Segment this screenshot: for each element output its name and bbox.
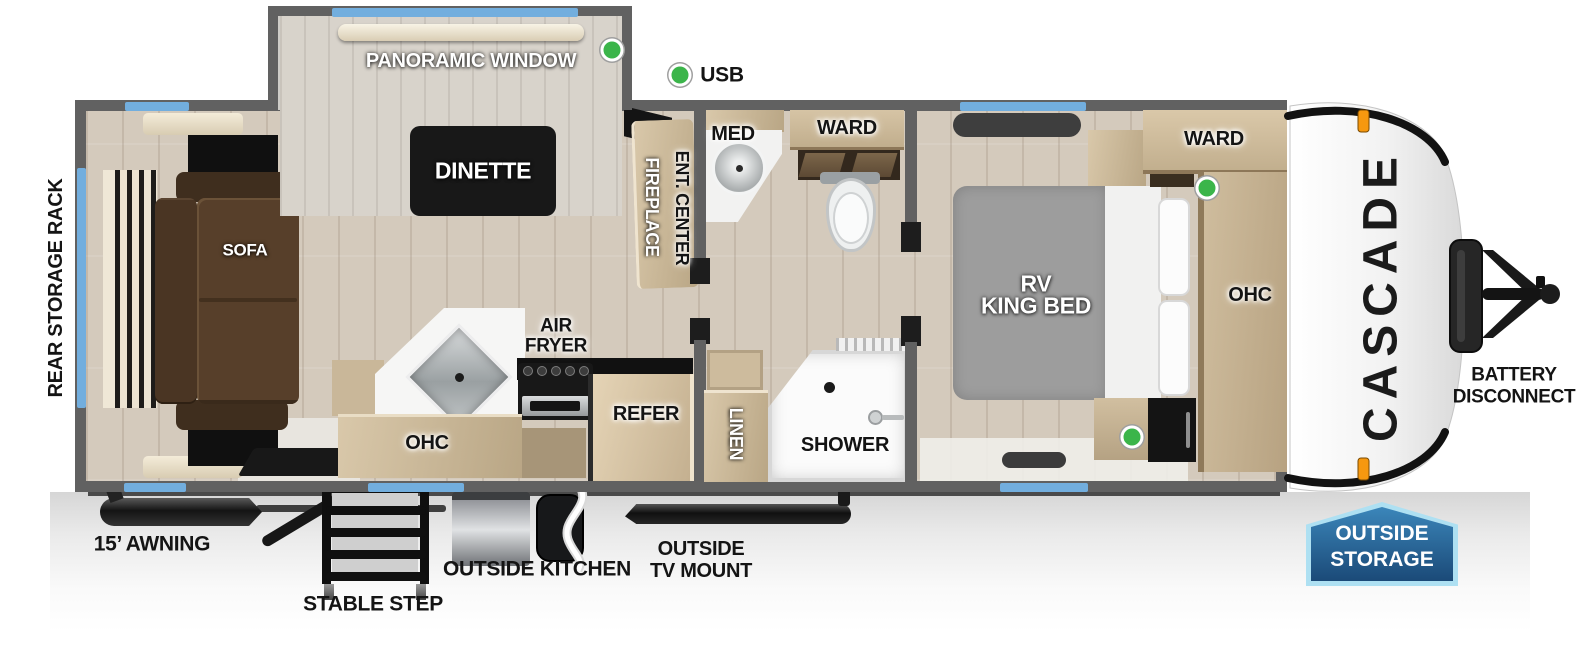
bedroom-ward-shelf bbox=[1150, 174, 1194, 187]
burner-knob bbox=[551, 366, 561, 376]
hitch-tongue bbox=[1482, 288, 1544, 300]
end-table-top bbox=[188, 135, 278, 175]
oven-window bbox=[530, 401, 580, 411]
tv-mount-label-line1: OUTSIDE bbox=[658, 539, 745, 559]
battery-box-inner bbox=[1457, 250, 1465, 342]
battery-disconnect-label-line1: BATTERY bbox=[1471, 366, 1557, 385]
burner-knob bbox=[565, 366, 575, 376]
usb-legend-label: USB bbox=[700, 65, 743, 86]
bath-bedroom-wall-top bbox=[905, 110, 917, 222]
window-valance bbox=[338, 24, 584, 41]
entry-door-post bbox=[690, 258, 710, 284]
hitch-coupler bbox=[1540, 284, 1560, 304]
clearance-marker-top bbox=[1358, 110, 1369, 132]
usb-port-dot bbox=[601, 39, 624, 62]
step-bar bbox=[326, 572, 426, 581]
entry-wall-top bbox=[694, 110, 706, 258]
med-label: MED bbox=[711, 124, 755, 144]
usb-port-dot bbox=[1121, 426, 1144, 449]
burner-knob bbox=[523, 366, 533, 376]
window-slide-top bbox=[332, 8, 578, 17]
rear-storage-rack-label: REAR STORAGE RACK bbox=[46, 179, 66, 398]
step-bar bbox=[326, 506, 426, 515]
kitchen-ohc-label: OHC bbox=[405, 433, 449, 453]
toilet-seat bbox=[833, 192, 869, 244]
outside-kitchen-grill bbox=[452, 492, 530, 566]
battery-box bbox=[1450, 240, 1482, 352]
step-bar bbox=[326, 550, 426, 559]
bed-bench bbox=[1002, 452, 1066, 468]
dinette-label: DINETTE bbox=[435, 160, 531, 183]
window-rear-left bbox=[77, 168, 86, 408]
awning-roll bbox=[100, 498, 262, 526]
rear-storage-rack bbox=[103, 170, 157, 408]
shower-label: SHOWER bbox=[801, 435, 889, 455]
refer bbox=[588, 374, 694, 481]
bedroom-ohc-panel bbox=[1198, 172, 1287, 472]
bedroom-ohc-label: OHC bbox=[1228, 285, 1272, 305]
hitch-pin bbox=[1536, 276, 1545, 288]
bath-bedroom-wall-bottom bbox=[905, 342, 917, 482]
window-top-left bbox=[125, 102, 189, 111]
window-bottom-rear bbox=[124, 483, 186, 492]
bed-head-cabinet bbox=[1088, 130, 1146, 188]
sofa-back-cushions bbox=[155, 198, 197, 404]
outside-storage-label-line1: OUTSIDE bbox=[1335, 521, 1428, 547]
shower-faucet bbox=[868, 410, 883, 425]
bedroom-ward-label: WARD bbox=[1184, 129, 1244, 149]
kitchen-sink-drain bbox=[455, 373, 464, 382]
cabinet-handle bbox=[1186, 412, 1190, 448]
clearance-marker-bottom bbox=[1358, 458, 1369, 480]
window-bottom-kitchen bbox=[368, 483, 464, 492]
shower-drain bbox=[824, 382, 835, 393]
kitchen-ohc-side bbox=[522, 428, 586, 478]
sofa-label: SOFA bbox=[222, 242, 267, 259]
burner-knob bbox=[537, 366, 547, 376]
front-cap: CASCADE bbox=[1278, 92, 1568, 502]
usb-legend-dot bbox=[669, 64, 692, 87]
refer-label: REFER bbox=[613, 404, 679, 424]
panoramic-window-label: PANORAMIC WINDOW bbox=[366, 51, 576, 71]
battery-disconnect-label-line2: DISCONNECT bbox=[1453, 388, 1576, 407]
usb-port-dot bbox=[1196, 177, 1219, 200]
outside-kitchen-label: OUTSIDE KITCHEN bbox=[443, 559, 631, 580]
headboard bbox=[953, 113, 1081, 137]
window-bottom-bedroom bbox=[1000, 483, 1088, 492]
chassis-line bbox=[88, 492, 1280, 496]
outside-storage-badge-inner: OUTSIDE STORAGE bbox=[1311, 507, 1453, 581]
tv-mount-label-line2: TV MOUNT bbox=[650, 561, 752, 581]
air-fryer-label-line1: AIR bbox=[540, 317, 572, 336]
bath-ward-label: WARD bbox=[817, 118, 877, 138]
tv-mount-bar bbox=[625, 504, 851, 524]
shower-wand bbox=[882, 415, 904, 420]
linen-label: LINEN bbox=[727, 408, 745, 461]
floorplan-canvas: OUTSIDE STORAGE bbox=[0, 0, 1584, 656]
step-bar bbox=[326, 528, 426, 537]
linen-cabinet-upper bbox=[707, 350, 763, 390]
cascade-logo: CASCADE bbox=[1355, 152, 1408, 442]
bed-sheet bbox=[1105, 186, 1161, 400]
sofa-arm-bottom bbox=[176, 400, 288, 430]
window-top-bedroom bbox=[960, 102, 1086, 111]
ent-center-label: ENT. CENTER bbox=[673, 151, 691, 266]
bedroom-door-post bbox=[901, 222, 921, 252]
sofa-seat-seam bbox=[199, 298, 297, 302]
stove-air-fryer bbox=[518, 363, 593, 420]
bed-pillow bbox=[1158, 198, 1190, 296]
outside-storage-label-line2: STORAGE bbox=[1330, 547, 1433, 573]
air-fryer-label-line2: FRYER bbox=[525, 337, 587, 356]
awning-label: 15’ AWNING bbox=[94, 534, 210, 555]
sofa-tray-top bbox=[143, 113, 243, 135]
bedroom-black-cabinet bbox=[1148, 398, 1196, 462]
rv-king-bed-label-line2: KING BED bbox=[981, 295, 1091, 318]
shower-grate bbox=[836, 338, 908, 351]
bed-pillow bbox=[1158, 300, 1190, 396]
fireplace-label: FIREPLACE bbox=[643, 157, 661, 256]
stable-step-label: STABLE STEP bbox=[303, 594, 443, 615]
med-sink-drain bbox=[736, 165, 743, 172]
